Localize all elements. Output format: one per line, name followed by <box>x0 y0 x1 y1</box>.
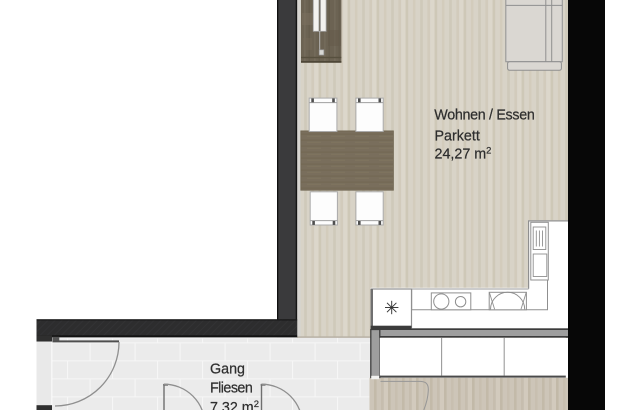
svg-text:7,32 m2: 7,32 m2 <box>210 399 259 410</box>
svg-text:Parkett: Parkett <box>435 129 480 145</box>
svg-text:Gang: Gang <box>210 361 245 377</box>
svg-text:Fliesen: Fliesen <box>210 381 253 397</box>
svg-text:Wohnen / Essen: Wohnen / Essen <box>434 108 535 124</box>
svg-text:24,27 m2: 24,27 m2 <box>435 146 492 163</box>
